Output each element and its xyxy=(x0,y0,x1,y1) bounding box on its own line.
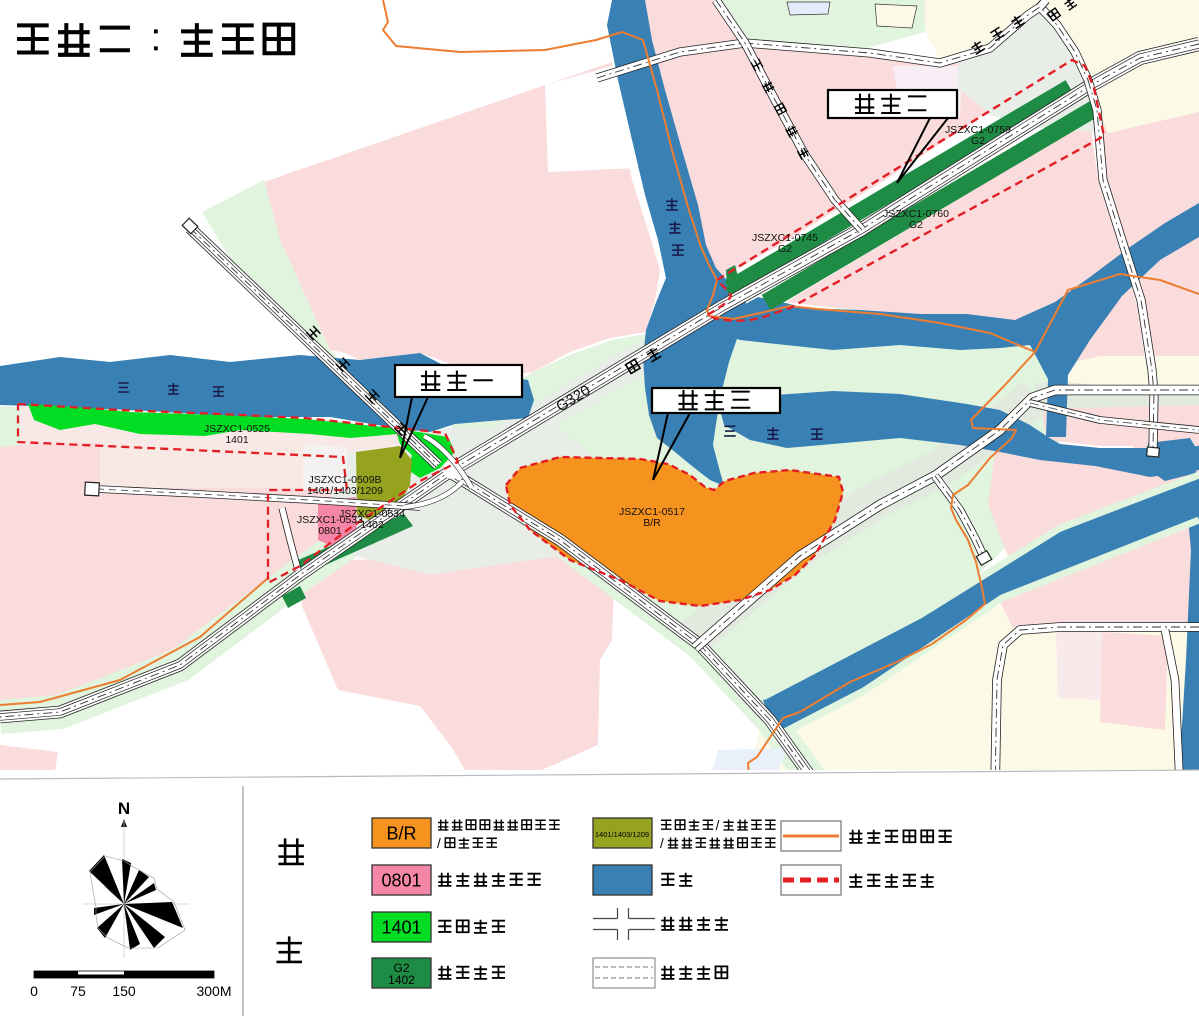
svg-text:0: 0 xyxy=(30,983,38,999)
svg-text:B/R: B/R xyxy=(643,517,661,529)
svg-text:75: 75 xyxy=(70,983,86,999)
svg-text:B/R: B/R xyxy=(386,823,416,843)
svg-text:/: / xyxy=(437,836,441,851)
svg-text:1401/1403/1209: 1401/1403/1209 xyxy=(595,830,649,839)
svg-text:G2: G2 xyxy=(778,243,792,255)
svg-text:1402: 1402 xyxy=(360,519,384,531)
svg-text:150: 150 xyxy=(112,983,136,999)
svg-text:1401: 1401 xyxy=(381,917,421,937)
svg-text:/: / xyxy=(660,836,664,851)
svg-text:300M: 300M xyxy=(196,983,231,999)
svg-text:0801: 0801 xyxy=(318,525,342,537)
svg-text:N: N xyxy=(118,799,130,818)
svg-text:/: / xyxy=(716,818,720,833)
svg-text:1402: 1402 xyxy=(388,973,415,987)
svg-text:0801: 0801 xyxy=(381,870,421,890)
svg-text:G2: G2 xyxy=(909,219,923,231)
svg-text:G2: G2 xyxy=(971,135,985,147)
svg-text:1401: 1401 xyxy=(225,434,249,446)
svg-text:1401/1403/1209: 1401/1403/1209 xyxy=(307,485,383,497)
